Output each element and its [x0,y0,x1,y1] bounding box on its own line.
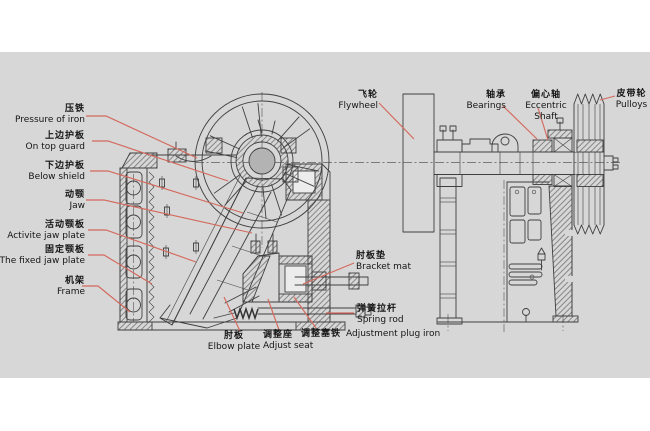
label-bracket-mat: 肘板垫 Bracket mat [356,251,411,273]
label-adjustment-plug-iron: 调整塞铁 Adjustment plug iron [301,329,440,340]
label-elbow-plate: 肘板 Elbow plate [206,331,262,353]
label-bearings: 轴承 Bearings [466,90,506,112]
flywheel-side-drawing [403,94,434,232]
label-fixed-jaw-plate: 固定颚板 The fixed jaw plate [0,245,85,267]
label-on-top-guard: 上边护板 On top guard [26,131,85,153]
label-jaw: 动颚 Jaw [65,190,85,212]
leader-flywheel [379,103,414,139]
diagram-drawing [0,0,650,431]
frame-side-drawing [437,178,578,324]
label-flywheel: 飞轮 Flywheel [338,90,378,112]
pulley-drawing [574,94,604,234]
leader-adjust-seat [268,299,279,330]
side-view [403,94,618,324]
toggle-adjust-mechanism-drawing [214,234,371,318]
label-active-jaw-plate: 活动颚板 Activite jaw plate [7,220,85,242]
label-pulleys: 皮带轮 Pulloys [613,89,650,111]
label-pressure-of-iron: 压铁 Pressure of iron [15,104,85,126]
label-frame: 机架 Frame [57,276,85,298]
label-spring-rod: 弹簧拉杆 Spring rod [357,304,404,326]
label-below-shield: 下边护板 Below shield [28,161,85,183]
centerlines [134,92,623,332]
label-eccentric-shaft: 偏心轴 Eccentric Shaft [518,90,574,123]
jaw-crusher-diagram: 压铁 Pressure of iron 上边护板 On top guard 下边… [0,0,650,431]
leader-lines [82,96,615,331]
